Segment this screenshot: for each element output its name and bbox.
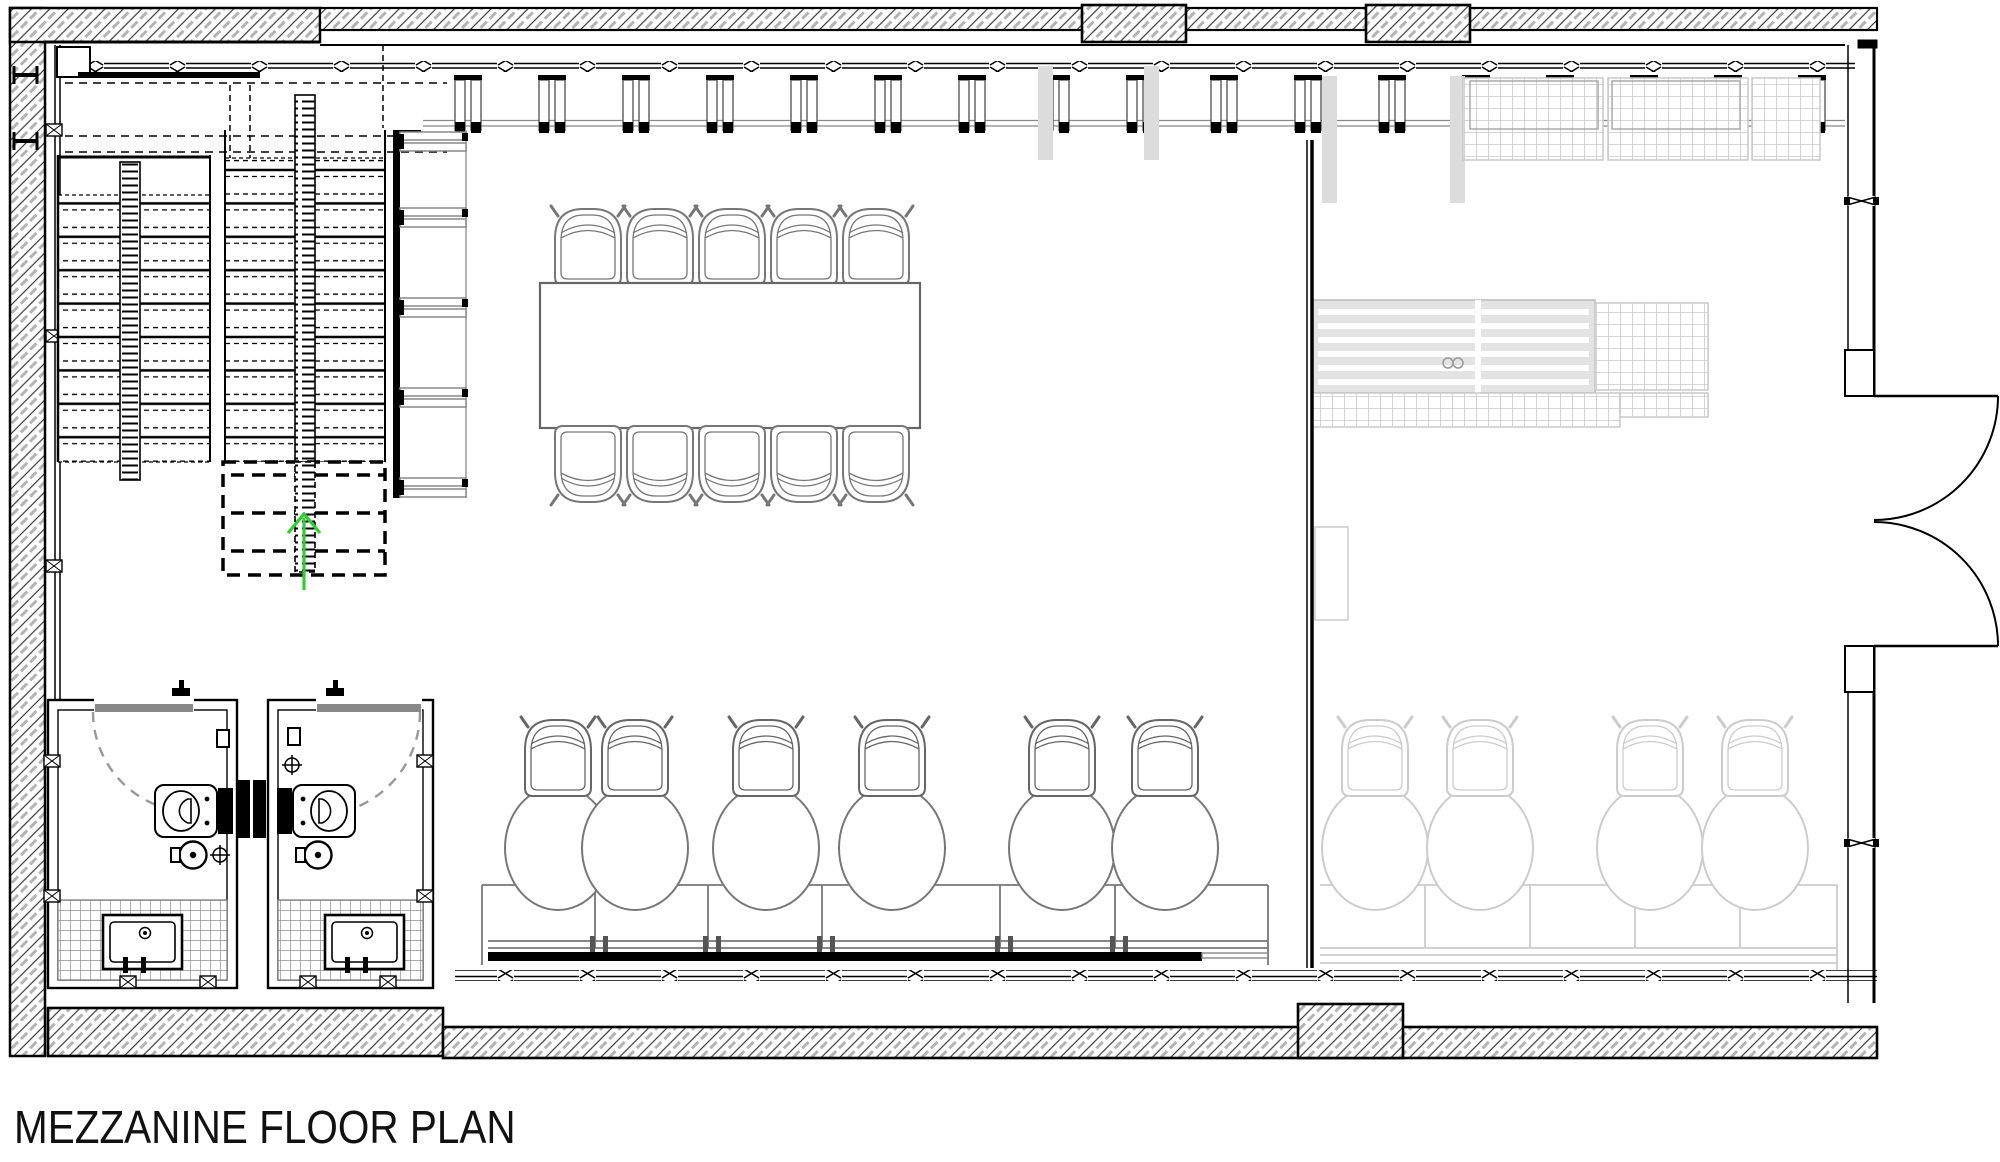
ghost-shelving-top-right	[1463, 78, 1820, 160]
facade-fin	[454, 75, 482, 133]
task-chair	[1025, 717, 1099, 796]
conference-chair	[695, 206, 769, 285]
vanity-sink	[325, 915, 404, 973]
conference-chair	[623, 426, 697, 505]
conference-table	[540, 283, 920, 428]
ghost-task-chair	[1338, 717, 1412, 796]
ghost-task-chair	[1613, 717, 1687, 796]
workstation-row	[482, 717, 1268, 965]
double-exit-door	[1874, 396, 1998, 646]
mezzanine-floor-plan-drawing	[0, 0, 2000, 1162]
door-jamb	[1845, 646, 1874, 692]
task-seats	[505, 717, 1218, 910]
toilet-icon	[277, 785, 355, 837]
bottom-wall	[443, 1027, 1877, 1058]
ghost-kitchen-block	[1312, 300, 1708, 620]
mezzanine-edge-rail	[455, 970, 1877, 981]
task-chair	[855, 717, 929, 796]
landing-edge	[78, 72, 260, 78]
door-jamb	[1845, 350, 1874, 396]
basin-icon	[171, 842, 207, 869]
stair-core	[14, 45, 447, 700]
mullion-joint-icon	[1844, 838, 1879, 848]
desk-leg-brackets	[590, 936, 1128, 952]
ghost-cabinet	[1315, 527, 1348, 620]
partition-wall	[1307, 140, 1312, 968]
paper-holder-icon	[288, 728, 300, 745]
conference-chair	[695, 426, 769, 505]
stair-side-shelf-unit	[393, 130, 468, 498]
task-chair	[521, 717, 595, 796]
conference-chair	[551, 426, 625, 505]
stair-stringer	[295, 95, 315, 462]
paper-holder-icon	[217, 730, 229, 747]
left-wall	[10, 8, 45, 1056]
ghost-workstation-row	[1320, 717, 1837, 970]
floor-plan-sheet: MEZZANINE FLOOR PLAN	[0, 0, 2000, 1162]
desk-rail	[488, 952, 1202, 961]
task-chair	[729, 717, 803, 796]
door-closer-icon	[326, 680, 344, 696]
top-wall-pier-1	[1082, 5, 1186, 42]
stair-flight-left	[58, 155, 210, 480]
door-leaf	[95, 704, 193, 712]
ghost-task-chair	[1443, 717, 1517, 796]
task-chair	[1128, 717, 1202, 796]
stair-flight-right	[225, 95, 385, 462]
stair-stringer	[120, 162, 140, 480]
conference-chair	[551, 206, 625, 285]
wc-room-1	[44, 680, 237, 988]
vanity-sink	[103, 915, 182, 973]
mullion-joint-icon	[1844, 196, 1879, 206]
conference-chair	[839, 426, 913, 505]
conference-chair	[767, 426, 841, 505]
conference-chair	[767, 206, 841, 285]
door-leaf	[317, 704, 421, 712]
door-closer-icon	[172, 680, 190, 696]
basin-icon	[296, 842, 332, 869]
meeting-area	[540, 206, 920, 505]
toilet-icon	[155, 785, 233, 837]
ghost-task-chair	[1718, 717, 1792, 796]
conference-chair	[839, 206, 913, 285]
top-wall-pier-2	[1366, 5, 1470, 42]
top-wall-left	[10, 8, 320, 42]
wc-room-2	[268, 680, 433, 988]
wc-plumbing-shaft	[237, 780, 266, 838]
task-chair	[598, 717, 672, 796]
floor-opening-dashed-lines	[65, 83, 447, 152]
curtain-wall-rail	[65, 61, 1855, 72]
plan-title: MEZZANINE FLOOR PLAN	[14, 1100, 516, 1154]
bottom-wall-pier	[1298, 1004, 1403, 1058]
glazed-wall-right	[1844, 45, 1998, 1003]
conference-chair	[623, 206, 697, 285]
bottom-wall-left	[48, 1008, 443, 1056]
floor-drain-icon	[282, 755, 302, 775]
